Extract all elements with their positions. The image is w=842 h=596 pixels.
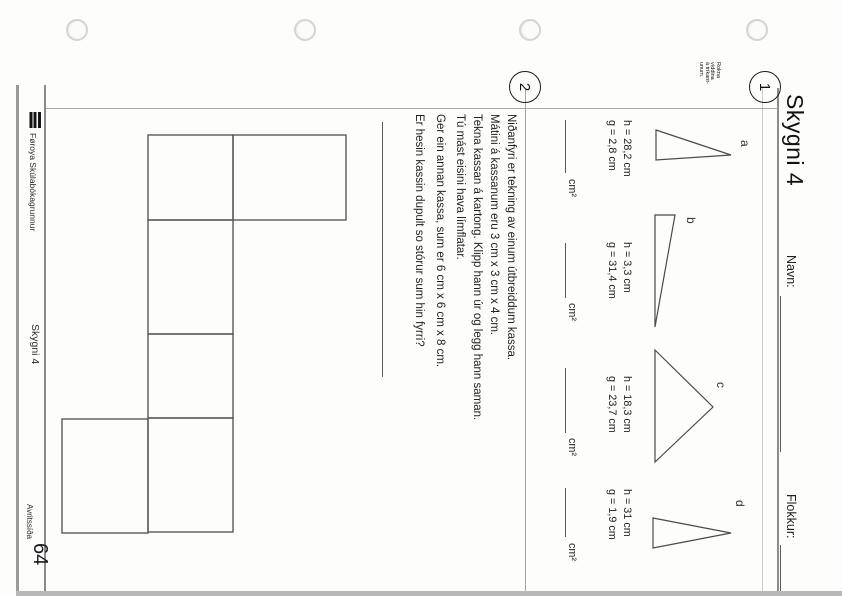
question-line: Er hesin kassin dupult so stórur sum hin… [413, 114, 425, 347]
punch-hole [294, 19, 316, 41]
header-rule-light [762, 88, 763, 592]
class-blank[interactable] [780, 545, 781, 592]
base-value: g = 2,8 cm [604, 120, 619, 177]
unit-label-a: cm² [566, 179, 578, 197]
margin-rule [45, 108, 778, 109]
punch-hole [519, 19, 541, 41]
height-value: h = 3,3 cm [619, 242, 634, 299]
header-rule [777, 88, 779, 592]
instruction-line: Niðanfyri er tekning av einum útbreiddum… [505, 114, 517, 360]
triangle-c-label: c [714, 382, 728, 388]
triangle-d [653, 518, 731, 548]
instruction-line: Tú mást eisini hava límflatar. [454, 114, 466, 260]
net-face-2 [148, 220, 233, 334]
answer-blank-d[interactable] [565, 488, 566, 537]
triangle-c-measures: h = 18,3 cm g = 23,7 cm [604, 376, 634, 433]
triangle-b [655, 215, 675, 327]
triangle-a-measures: h = 28,2 cm g = 2,8 cm [604, 120, 634, 177]
page-edge-shadow-right [16, 591, 842, 596]
page-title: Skygni 4 [781, 94, 808, 186]
answer-blank-a[interactable] [565, 120, 566, 173]
base-value: g = 31,4 cm [604, 242, 619, 299]
publisher-name: Føroya Skúlabókagrunnur [28, 133, 38, 231]
section2-number: 2 [517, 83, 534, 91]
section2-number-badge: 2 [509, 71, 541, 103]
net-face-top-flap [233, 135, 346, 220]
punch-hole [746, 19, 768, 41]
worksheet-page: Skygni 4 Navn: Flokkur: 1 Rokna víddina … [0, 0, 842, 596]
footer-rule [44, 85, 46, 592]
answer-blank-b[interactable] [565, 243, 566, 298]
instruction-line: Tekna kassan á kartong. Klipp hann úr og… [471, 114, 483, 420]
instruction-line: Mátini á kassanum eru 3 cm x 3 cm x 4 cm… [488, 114, 500, 335]
height-value: h = 31 cm [619, 489, 634, 540]
page-number: 64 [28, 543, 51, 565]
triangle-a [656, 130, 731, 160]
triangle-d-label: d [733, 500, 747, 507]
publisher-logo-icon [28, 112, 41, 128]
answer-line[interactable] [382, 122, 383, 377]
punch-hole [66, 19, 88, 41]
net-face-1 [148, 135, 233, 220]
base-value: g = 1,9 cm [604, 489, 619, 540]
unit-label-b: cm² [566, 303, 578, 321]
triangle-b-label: b [684, 217, 698, 224]
net-face-3 [148, 334, 233, 418]
section1-margin-note: Rokna víddina á tríkant- unum. [698, 62, 720, 108]
name-blank[interactable] [780, 296, 781, 452]
base-value: g = 23,7 cm [604, 376, 619, 433]
box-net-figure [60, 134, 347, 534]
footer-series-title: Skygni 4 [29, 324, 41, 364]
answer-blank-c[interactable] [565, 368, 566, 433]
triangle-a-label: a [738, 140, 752, 147]
scanned-worksheet-canvas: Skygni 4 Navn: Flokkur: 1 Rokna víddina … [0, 0, 842, 596]
height-value: h = 28,2 cm [619, 120, 634, 177]
unit-label-d: cm² [566, 543, 578, 561]
height-value: h = 18,3 cm [619, 376, 634, 433]
triangle-c [655, 350, 713, 462]
page-edge-shadow-bottom [16, 85, 19, 596]
net-face-4 [148, 418, 233, 532]
triangle-d-measures: h = 31 cm g = 1,9 cm [604, 489, 634, 540]
section1-number-badge: 1 [749, 71, 781, 103]
class-label: Flokkur: [784, 494, 798, 538]
net-face-bottom-flap [62, 419, 148, 533]
section-divider [525, 90, 526, 592]
triangle-b-measures: h = 3,3 cm g = 31,4 cm [604, 242, 634, 299]
name-label: Navn: [784, 255, 798, 288]
instruction-line: Ger ein annan kassa, sum er 6 cm x 6 cm … [434, 114, 446, 367]
unit-label-c: cm² [566, 438, 578, 456]
page-type-label: Avritssíða [25, 504, 34, 539]
section1-number: 1 [757, 83, 774, 91]
